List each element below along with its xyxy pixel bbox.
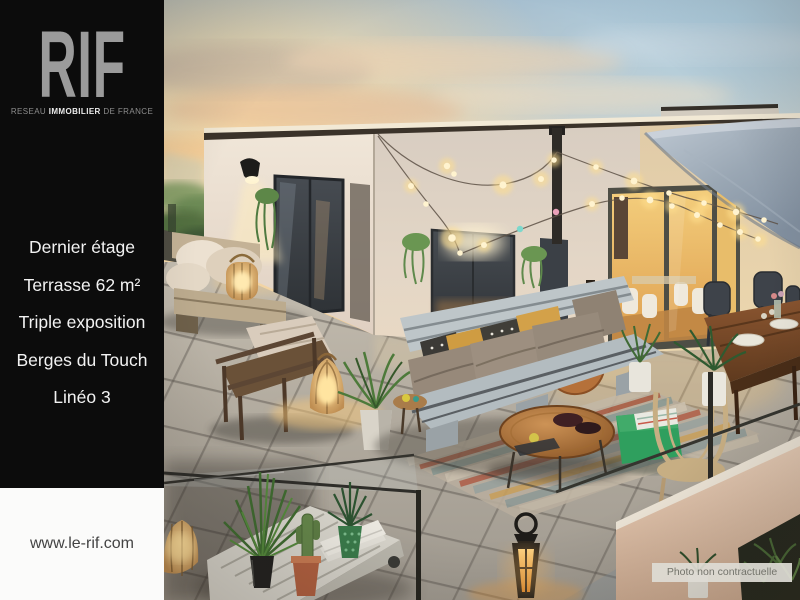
feature-item: Linéo 3 — [0, 379, 164, 417]
tagline-pre: RESEAU — [11, 107, 49, 116]
photo-disclaimer: Photo non contractuelle — [652, 563, 792, 582]
rif-logo-text: RIF — [38, 18, 125, 113]
flyer: RIF RESEAU IMMOBILIER DE FRANCE Dernier … — [0, 0, 800, 600]
website-link[interactable]: www.le-rif.com — [0, 535, 164, 553]
rif-logo: RIF — [0, 18, 164, 113]
feature-item: Berges du Touch — [0, 342, 164, 380]
vignette — [164, 0, 800, 600]
website-band: www.le-rif.com — [0, 488, 164, 600]
terrace-photo — [164, 0, 800, 600]
feature-item: Terrasse 62 m² — [0, 267, 164, 305]
feature-list: Dernier étage Terrasse 62 m² Triple expo… — [0, 229, 164, 417]
feature-item: Triple exposition — [0, 304, 164, 342]
tagline-post: DE FRANCE — [101, 107, 153, 116]
feature-item: Dernier étage — [0, 229, 164, 267]
brand-tagline: RESEAU IMMOBILIER DE FRANCE — [0, 107, 164, 116]
sidebar: RIF RESEAU IMMOBILIER DE FRANCE Dernier … — [0, 0, 164, 600]
tagline-bold: IMMOBILIER — [49, 107, 101, 116]
